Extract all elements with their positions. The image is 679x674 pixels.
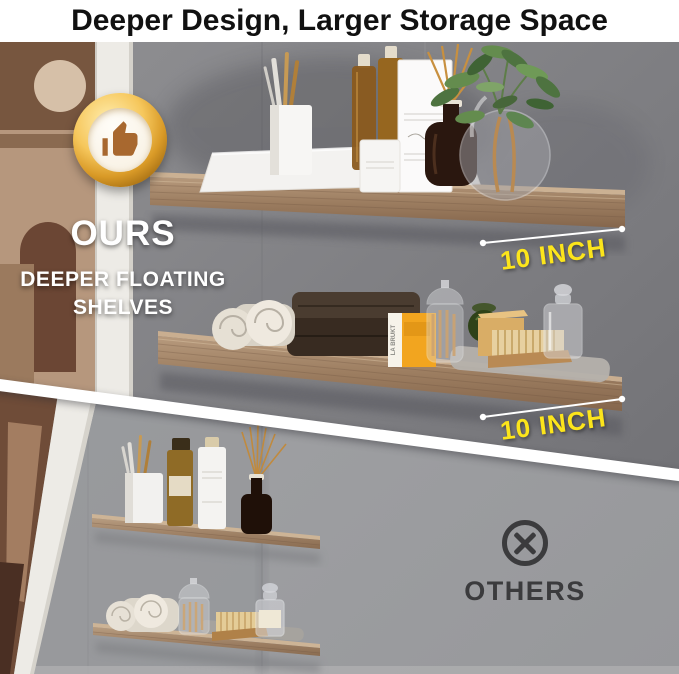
apothecary-jar [427,280,463,362]
header-bar: Deeper Design, Larger Storage Space [0,0,679,42]
white-pump-bottle [360,140,400,192]
thumbs-up-badge [73,93,167,187]
x-circle-icon [502,520,548,566]
ours-subtitle-line1: DEEPER FLOATING [0,266,246,294]
others-callout: OTHERS [440,520,610,607]
others-label: OTHERS [440,576,610,607]
soap-box-label: LA BRUKT [391,324,397,355]
comparison-photo: OTHERS [0,42,679,674]
product-image: Deeper Design, Larger Storage Space [0,0,679,674]
ours-label: OURS [0,214,246,254]
ours-subtitle: DEEPER FLOATING SHELVES [0,266,246,322]
page-title: Deeper Design, Larger Storage Space [71,4,608,38]
ours-subtitle-line2: SHELVES [0,294,246,322]
thumbs-up-icon [99,120,141,160]
ours-callout: OURS DEEPER FLOATING SHELVES [0,214,246,322]
